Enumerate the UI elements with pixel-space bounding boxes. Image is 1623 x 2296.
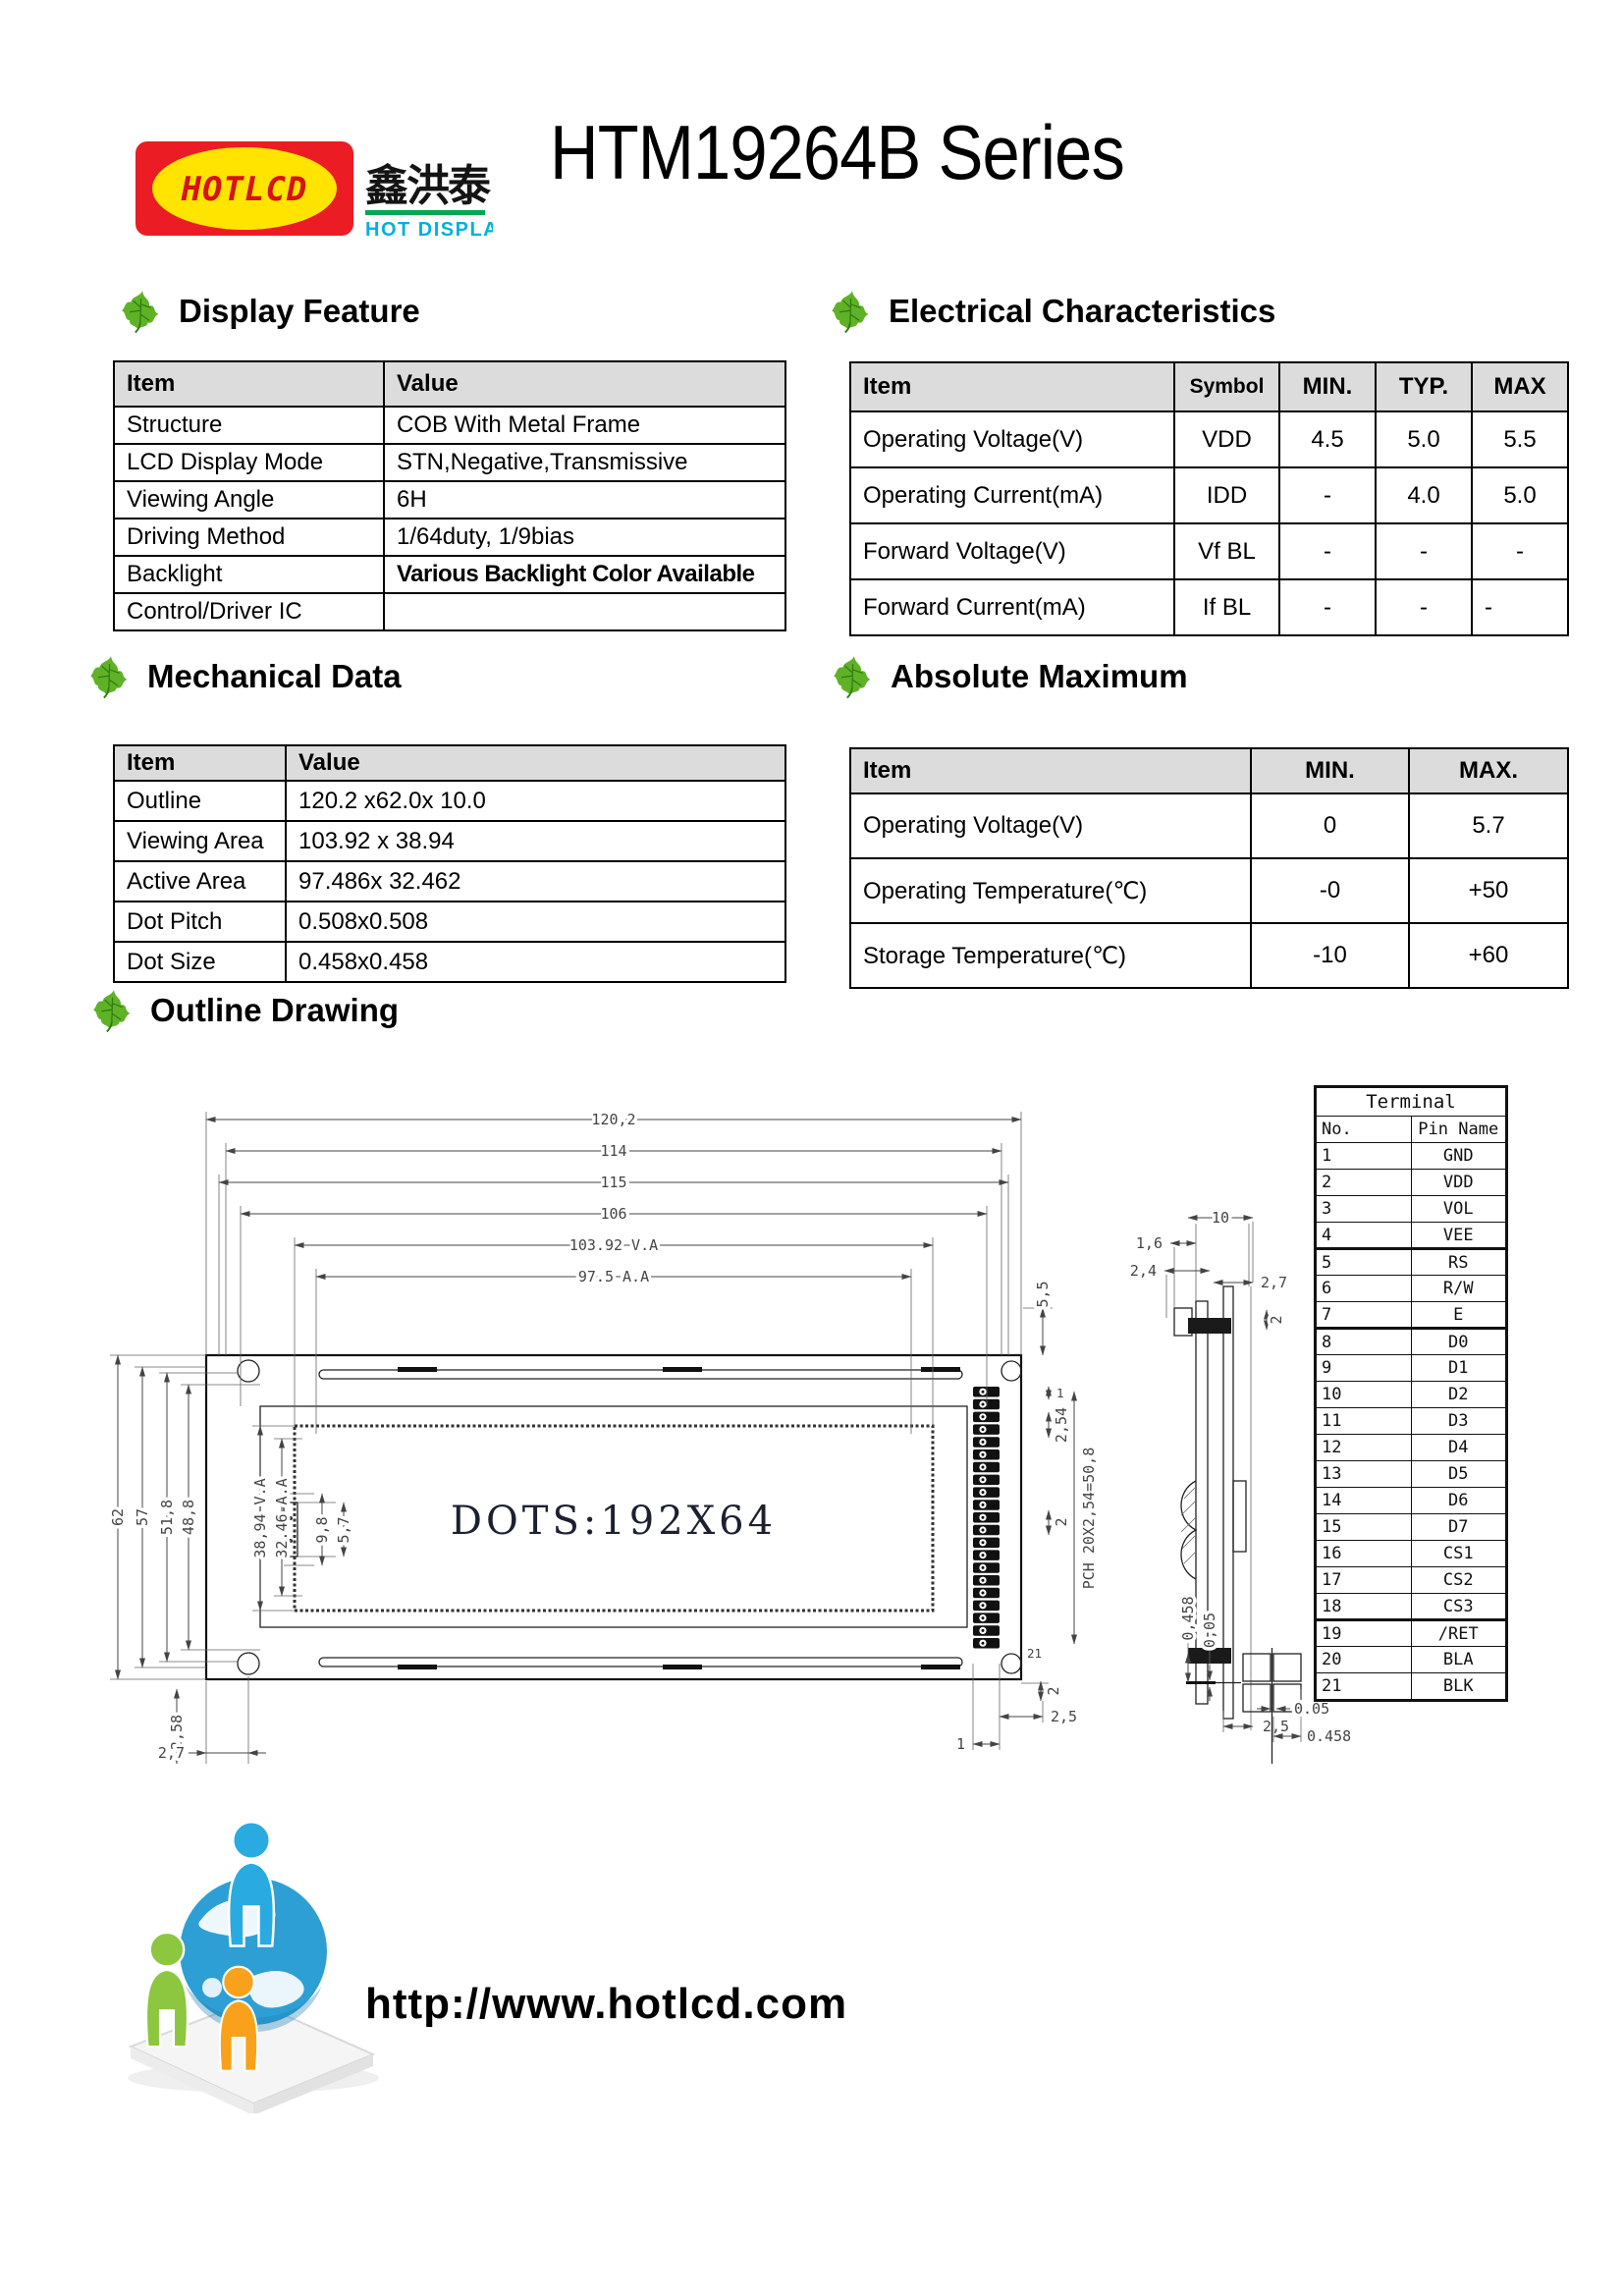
pin-row: 19/RET: [1317, 1620, 1506, 1647]
table-row: Control/Driver IC: [114, 593, 785, 630]
col-header: TYP.: [1376, 362, 1472, 411]
dots-label: DOTS:192X64: [451, 1499, 777, 1544]
website-url[interactable]: http://www.hotlcd.com: [365, 1980, 847, 2029]
table-row: Active Area 97.486x 32.462: [114, 861, 785, 902]
svg-text:2,4: 2,4: [1130, 1262, 1157, 1280]
pin-row: 12D4: [1317, 1435, 1506, 1461]
svg-text:PCH 20X2,54=50,8: PCH 20X2,54=50,8: [1080, 1448, 1098, 1590]
section-electrical-heading: Electrical Characteristics: [830, 289, 1275, 334]
logo-mark-text: HOTLCD: [181, 170, 308, 209]
leaf-icon: [88, 654, 134, 699]
display-feature-table: Item Value Structure COB With Metal Fram…: [113, 360, 786, 631]
pin-row: 6R/W: [1317, 1276, 1506, 1302]
pin-header: [973, 1387, 1000, 1649]
col-header: Pin Name: [1411, 1117, 1506, 1143]
mechanical-data-table: Item Value Outline 120.2 x62.0x 10.0 Vie…: [113, 744, 786, 983]
svg-text:5,7: 5,7: [335, 1516, 352, 1543]
table-row: Outline 120.2 x62.0x 10.0: [114, 781, 785, 821]
col-header: No.: [1317, 1117, 1412, 1143]
table-row: Operating Temperature(℃) -0 +50: [850, 858, 1568, 923]
leaf-icon: [120, 289, 165, 334]
pin-row: 17CS2: [1317, 1567, 1506, 1594]
svg-text:38,94 V.A: 38,94 V.A: [251, 1478, 269, 1558]
svg-text:21: 21: [1027, 1646, 1042, 1661]
absolute-maximum-table: Item MIN. MAX. Operating Voltage(V) 0 5.…: [849, 747, 1569, 989]
table-row: Storage Temperature(℃) -10 +60: [850, 923, 1568, 988]
svg-text:48,8: 48,8: [180, 1500, 197, 1535]
table-row: Dot Pitch 0.508x0.508: [114, 902, 785, 942]
svg-text:0.05: 0.05: [1294, 1700, 1329, 1718]
svg-text:0.458: 0.458: [1307, 1727, 1351, 1745]
section-mechanical-heading: Mechanical Data: [88, 654, 402, 699]
pin-row: 3VOL: [1317, 1196, 1506, 1223]
svg-text:10: 10: [1212, 1209, 1229, 1227]
logo-tagline-text: HOT DISPLAY: [365, 219, 493, 241]
col-header: MIN.: [1251, 748, 1409, 793]
svg-text:62: 62: [109, 1508, 127, 1526]
col-header: Value: [384, 361, 785, 407]
electrical-characteristics-table: Item Symbol MIN. TYP. MAX Operating Volt…: [849, 361, 1569, 636]
col-header: Item: [850, 362, 1174, 411]
col-header: Value: [286, 745, 785, 781]
table-row: Operating Current(mA) IDD - 4.0 5.0: [850, 467, 1568, 523]
svg-text:32.46 A.A: 32.46 A.A: [273, 1478, 291, 1558]
pin-row: 7E: [1317, 1302, 1506, 1329]
table-row: Driving Method 1/64duty, 1/9bias: [114, 519, 785, 556]
pin-row: 11D3: [1317, 1408, 1506, 1435]
col-header: Item: [114, 361, 384, 407]
svg-text:2,5: 2,5: [1051, 1708, 1077, 1725]
svg-text:2,7: 2,7: [158, 1744, 185, 1762]
pin-row: 5RS: [1317, 1249, 1506, 1276]
svg-text:1,6: 1,6: [1136, 1234, 1163, 1252]
pin-row: 15D7: [1317, 1514, 1506, 1541]
pin-row: 10D2: [1317, 1382, 1506, 1408]
pin-row: 4VEE: [1317, 1223, 1506, 1249]
section-title: Display Feature: [179, 293, 420, 330]
section-title: Absolute Maximum: [891, 658, 1188, 695]
col-header: MAX: [1472, 362, 1568, 411]
footer-logo: [106, 1819, 401, 2118]
logo-cn-text: 鑫洪泰: [365, 162, 492, 210]
table-row: Structure COB With Metal Frame: [114, 407, 785, 444]
pin-row: 1GND: [1317, 1143, 1506, 1170]
table-row: Viewing Area 103.92 x 38.94: [114, 821, 785, 861]
svg-text:51,8: 51,8: [158, 1500, 176, 1535]
globe-people-icon: [106, 1819, 401, 2113]
svg-text:97.5 A.A: 97.5 A.A: [578, 1268, 649, 1285]
svg-text:106: 106: [600, 1205, 626, 1223]
page-title: HTM19264B Series: [550, 108, 1124, 197]
table-row: Backlight Various Backlight Color Availa…: [114, 556, 785, 593]
table-row: Forward Current(mA) If BL - - -: [850, 579, 1568, 635]
svg-text:115: 115: [600, 1174, 626, 1191]
svg-text:0,05: 0,05: [1201, 1613, 1218, 1648]
dim-bottom-left: 2,58 2,7: [158, 1689, 266, 1764]
pin-row: 9D1: [1317, 1355, 1506, 1382]
col-header: MIN.: [1279, 362, 1376, 411]
section-display-feature-heading: Display Feature: [120, 289, 420, 334]
table-row: Operating Voltage(V) 0 5.7: [850, 793, 1568, 858]
dim-horizontal: 120,2 114 115 106 103.92 V.A 97.5 A.A: [206, 1111, 1021, 1285]
terminal-table: Terminal No. Pin Name 1GND 2VDD 3VOL 4VE…: [1314, 1085, 1508, 1702]
svg-text:1: 1: [1056, 1386, 1064, 1400]
outline-drawing: DOTS:192X64 120,2 114 115 106: [59, 1061, 1571, 1817]
svg-text:9,8: 9,8: [313, 1516, 331, 1543]
table-row: Dot Size 0.458x0.458: [114, 942, 785, 982]
leaf-icon: [91, 988, 136, 1033]
pin-row: 13D5: [1317, 1461, 1506, 1488]
section-title: Outline Drawing: [150, 992, 399, 1029]
mounting-hole: [1001, 1361, 1021, 1381]
svg-text:2: 2: [1268, 1315, 1285, 1324]
col-header: Symbol: [1174, 362, 1279, 411]
svg-text:5,5: 5,5: [1034, 1281, 1052, 1307]
svg-text:57: 57: [134, 1508, 151, 1526]
pin-row: 20BLA: [1317, 1647, 1506, 1673]
pin-row: 16CS1: [1317, 1541, 1506, 1567]
table-row: LCD Display Mode STN,Negative,Transmissi…: [114, 444, 785, 481]
svg-text:2,7: 2,7: [1261, 1274, 1287, 1291]
table-row: Forward Voltage(V) Vf BL - - -: [850, 523, 1568, 579]
svg-text:2: 2: [1045, 1686, 1062, 1695]
col-header: MAX.: [1409, 748, 1568, 793]
pin-row: 18CS3: [1317, 1594, 1506, 1620]
table-row: Operating Voltage(V) VDD 4.5 5.0 5.5: [850, 411, 1568, 467]
leaf-icon: [832, 654, 877, 699]
mounting-hole: [238, 1653, 259, 1674]
svg-text:0,458: 0,458: [1179, 1596, 1197, 1640]
pin-row: 8D0: [1317, 1329, 1506, 1355]
section-absolute-maximum-heading: Absolute Maximum: [832, 654, 1188, 699]
leaf-icon: [830, 289, 875, 334]
brand-logo: HOTLCD 鑫洪泰 HOT DISPLAY: [135, 139, 493, 246]
svg-text:2: 2: [1053, 1517, 1070, 1526]
hotlcd-logo-icon: HOTLCD 鑫洪泰 HOT DISPLAY: [135, 139, 493, 242]
terminal-title: Terminal: [1317, 1088, 1506, 1117]
col-header: Item: [850, 748, 1251, 793]
svg-text:2,5: 2,5: [1263, 1718, 1289, 1735]
svg-text:120,2: 120,2: [591, 1111, 635, 1128]
section-outline-heading: Outline Drawing: [91, 988, 399, 1033]
svg-text:103.92 V.A: 103.92 V.A: [569, 1236, 658, 1254]
svg-text:114: 114: [600, 1142, 626, 1160]
pin-row: 14D6: [1317, 1488, 1506, 1514]
col-header: Item: [114, 745, 286, 781]
section-title: Electrical Characteristics: [889, 293, 1275, 330]
table-row: Viewing Angle 6H: [114, 481, 785, 519]
mounting-hole: [1001, 1654, 1021, 1673]
section-title: Mechanical Data: [147, 658, 402, 695]
pin-row: 2VDD: [1317, 1170, 1506, 1196]
svg-text:2,54: 2,54: [1053, 1407, 1070, 1443]
svg-text:1: 1: [956, 1735, 965, 1753]
logo-green-bar: [365, 210, 485, 215]
pin-row: 21BLK: [1317, 1673, 1506, 1700]
